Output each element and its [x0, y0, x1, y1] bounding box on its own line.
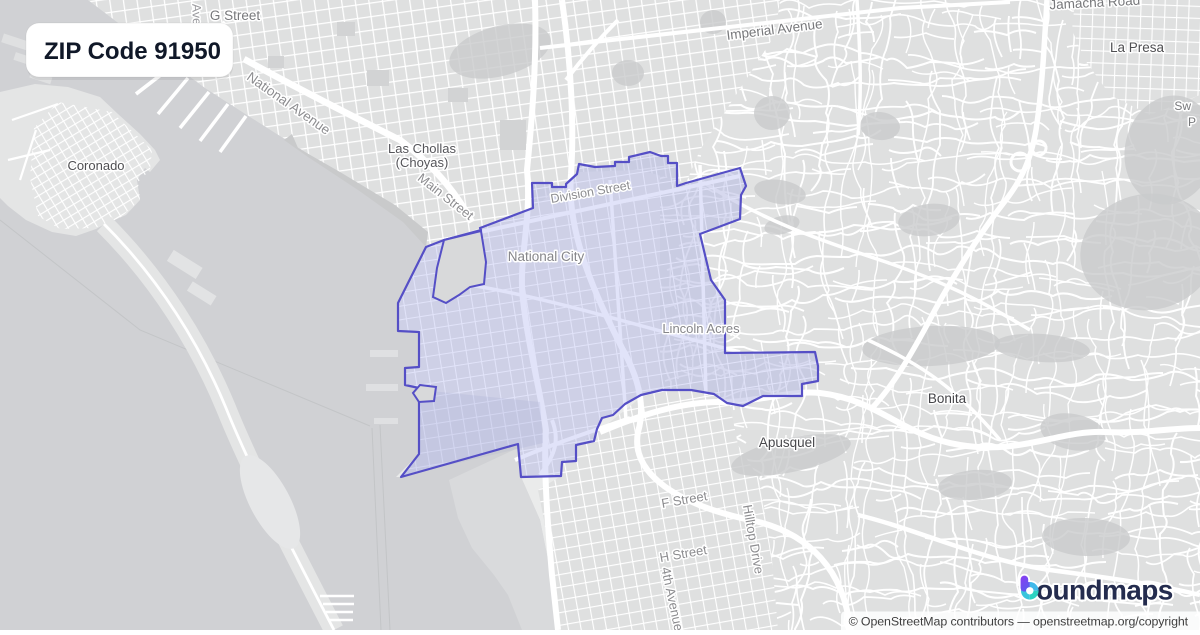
svg-text:Las Chollas: Las Chollas: [388, 141, 456, 156]
svg-text:P: P: [1188, 115, 1196, 129]
svg-text:Lincoln Acres: Lincoln Acres: [662, 321, 740, 336]
svg-text:© OpenStreetMap contributors —: © OpenStreetMap contributors — openstree…: [849, 615, 1189, 629]
svg-text:La Presa: La Presa: [1110, 40, 1165, 55]
svg-text:oundmaps: oundmaps: [1036, 575, 1173, 606]
svg-text:Sw: Sw: [1174, 99, 1191, 113]
svg-text:Bonita: Bonita: [928, 391, 967, 406]
svg-text:ZIP Code 91950: ZIP Code 91950: [44, 38, 221, 65]
svg-text:(Choyas): (Choyas): [396, 155, 449, 170]
svg-text:Coronado: Coronado: [67, 158, 124, 173]
svg-text:National City: National City: [508, 249, 585, 264]
svg-text:Apusquel: Apusquel: [759, 435, 815, 450]
svg-text:G Street: G Street: [210, 8, 261, 23]
